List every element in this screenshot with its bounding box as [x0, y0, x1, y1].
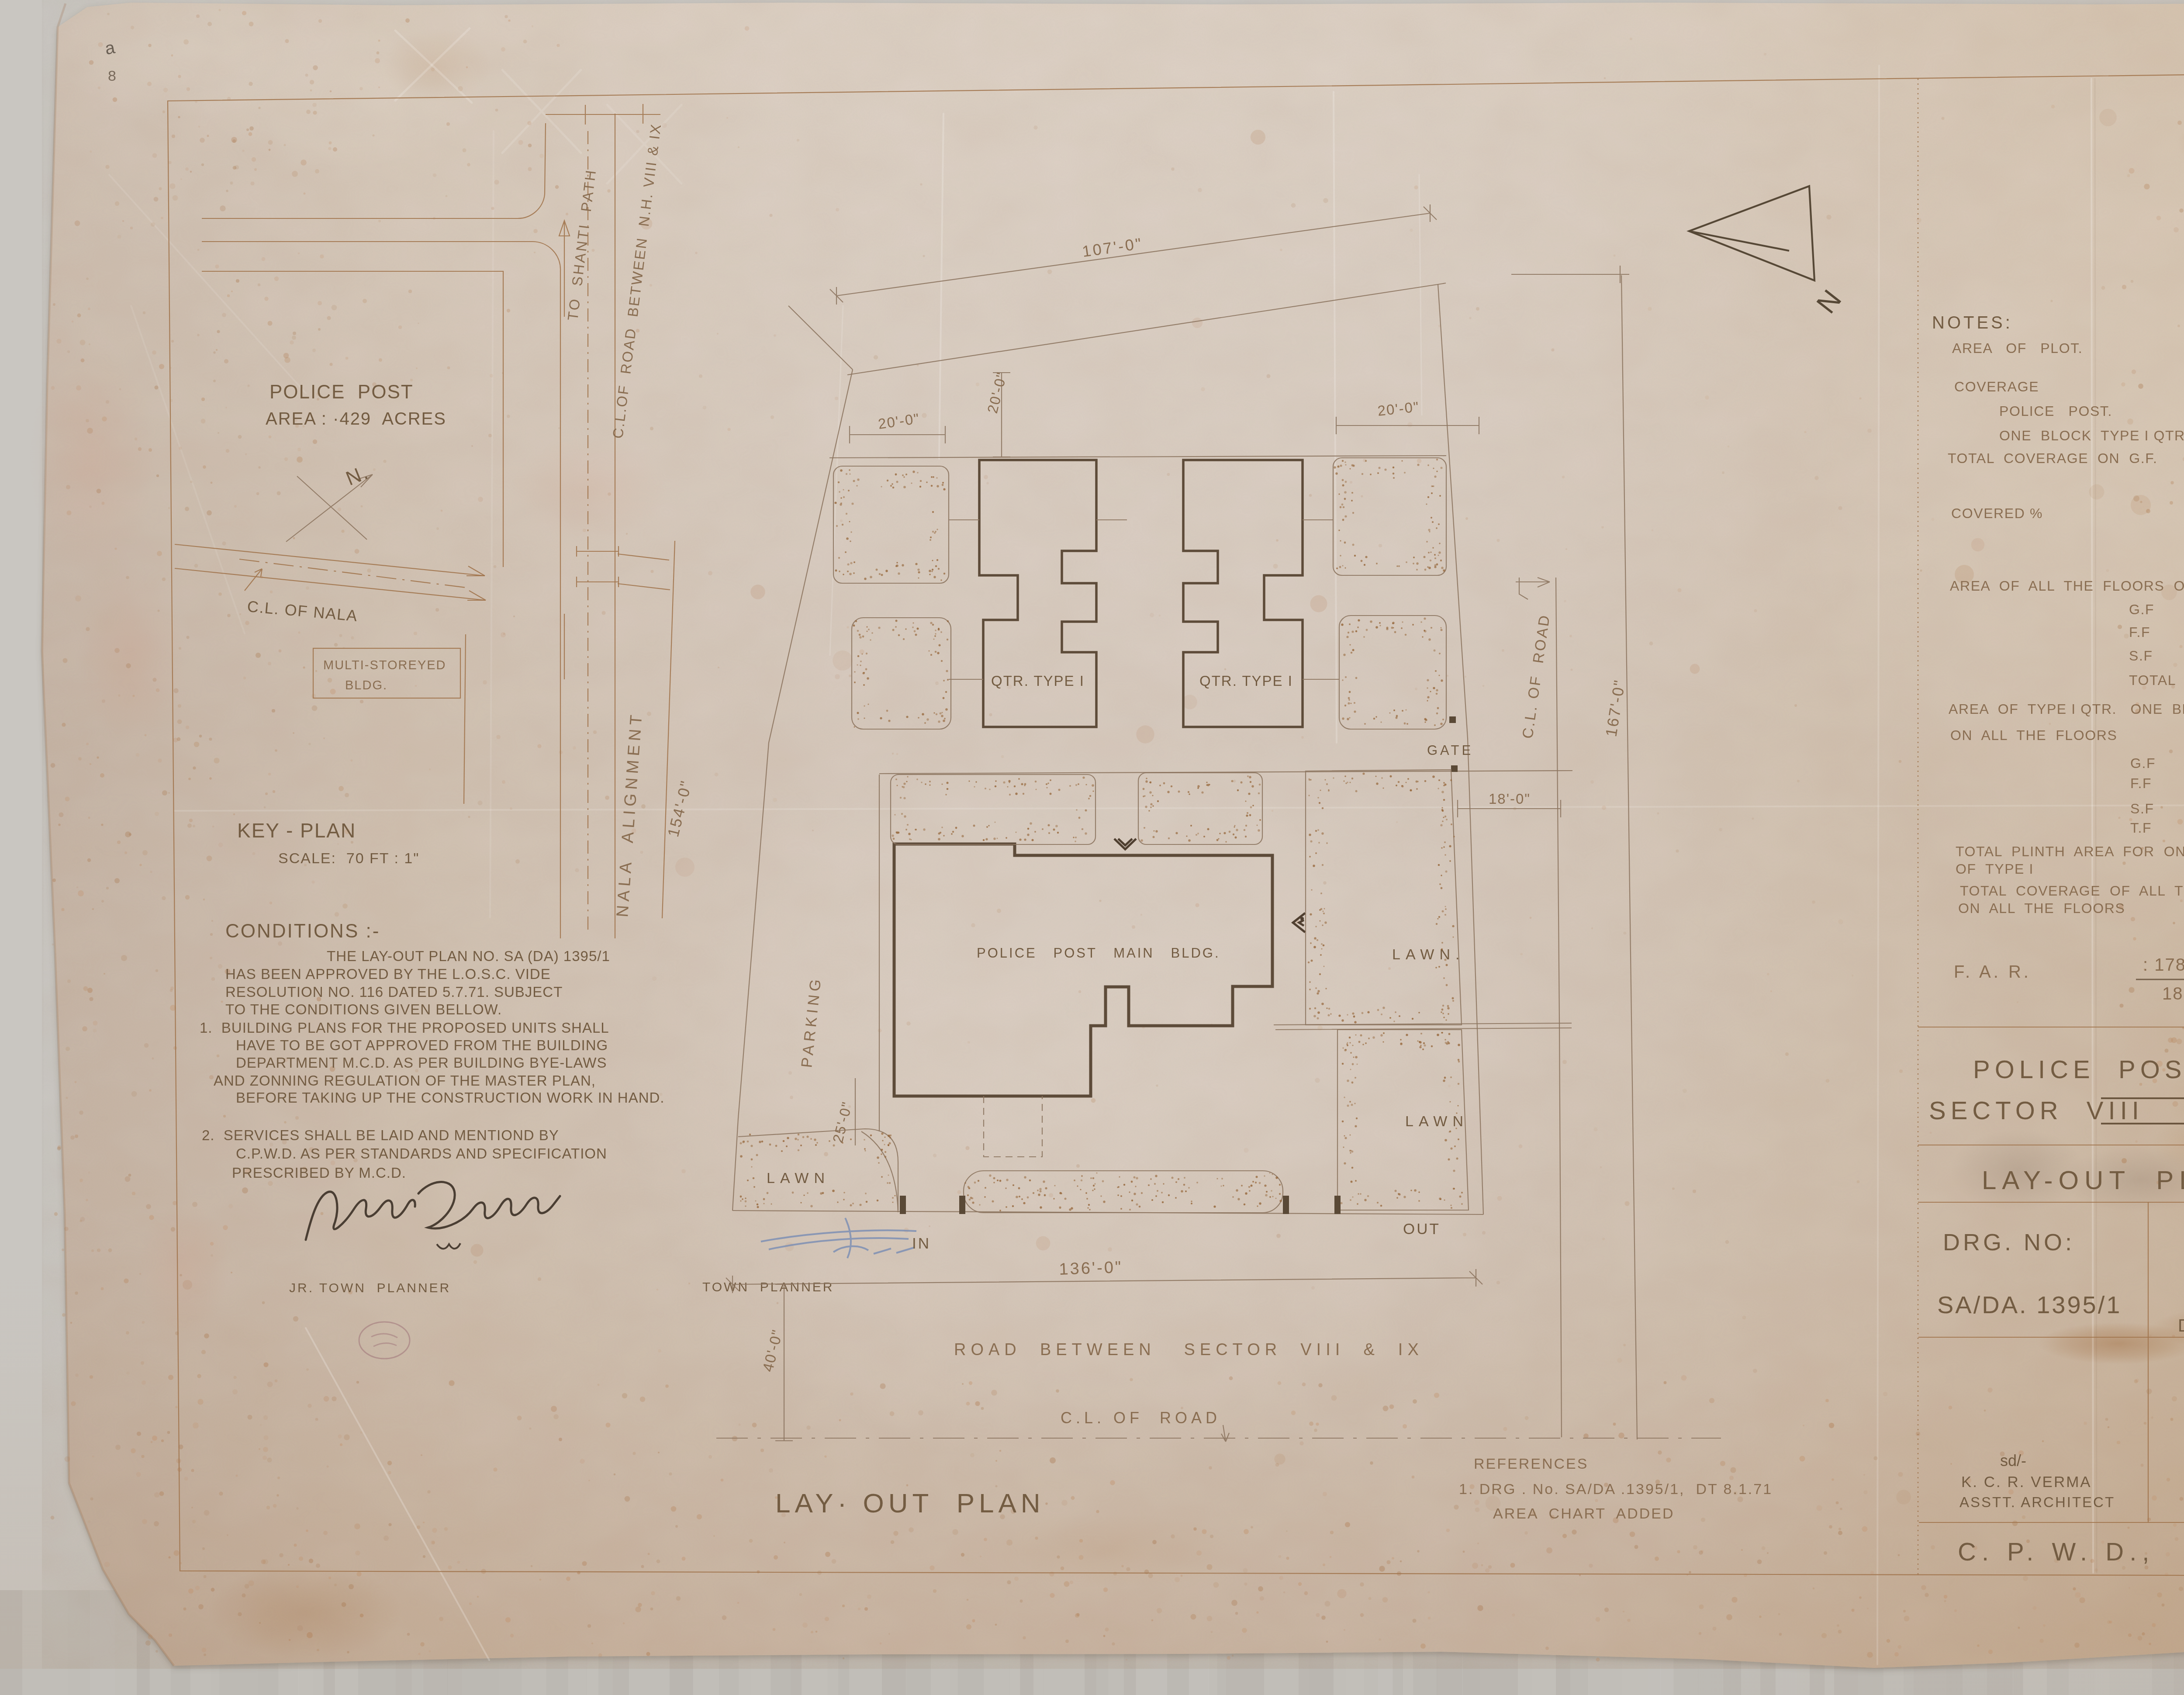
svg-text:TOWN PLANNER: TOWN PLANNER: [702, 1280, 834, 1294]
svg-text:C.L. OF ROAD: C.L. OF ROAD: [1061, 1409, 1221, 1427]
svg-text:F. A. R.: F. A. R.: [1954, 962, 2031, 981]
svg-text:AREA OF TYPE I QTR. ONE B: AREA OF TYPE I QTR. ONE BLOCK: [1949, 701, 2184, 717]
svg-text:POLICE POST: POLICE POST: [270, 381, 414, 402]
svg-text:8: 8: [108, 67, 116, 84]
svg-text:ONE BLOCK TYPE I QTR.: ONE BLOCK TYPE I QTR.: [1999, 428, 2184, 443]
svg-text:G.F: G.F: [2130, 755, 2156, 771]
svg-text:QTR. TYPE I: QTR. TYPE I: [991, 673, 1085, 689]
svg-text:BEFORE TAKING UP THE CONSTRUCT: BEFORE TAKING UP THE CONSTRUCTION WORK I…: [236, 1090, 664, 1106]
svg-text:CONDITIONS :-: CONDITIONS :-: [225, 920, 380, 941]
svg-text:S.F: S.F: [2129, 648, 2153, 664]
svg-text:SECTOR VIII: SECTOR VIII: [1929, 1096, 2144, 1124]
svg-text:ASSTT. ARCHITECT: ASSTT. ARCHITECT: [1959, 1494, 2115, 1510]
svg-text:QTR. TYPE I: QTR. TYPE I: [1199, 673, 1293, 689]
svg-text:136'-0": 136'-0": [1059, 1258, 1123, 1278]
svg-text:1. DRG . No. SA/DA .1395/1, D: 1. DRG . No. SA/DA .1395/1, DT 8.1.71: [1459, 1481, 1773, 1497]
svg-text:S.F: S.F: [2130, 801, 2154, 816]
svg-text:POLICE POST MAIN BLDG.: POLICE POST MAIN BLDG.: [977, 945, 1220, 961]
svg-text:HAS BEEN APPROVED BY THE L.O.S: HAS BEEN APPROVED BY THE L.O.S.C. VIDE: [225, 966, 551, 982]
svg-text:COVERAGE: COVERAGE: [1954, 379, 2039, 394]
svg-text:POLICE POST.: POLICE POST.: [1999, 403, 2112, 419]
svg-text:LAWN: LAWN: [1405, 1113, 1469, 1129]
svg-text:LAY· OUT PLAN: LAY· OUT PLAN: [775, 1488, 1045, 1518]
svg-text:K. C. R. VERMA: K. C. R. VERMA: [1961, 1473, 2092, 1490]
svg-text:TOTAL COVERAGE OF ALL THE: TOTAL COVERAGE OF ALL THE BLOCK: [1960, 883, 2184, 899]
svg-text:SCALE: 70 FT : 1": SCALE: 70 FT : 1": [278, 850, 419, 866]
svg-text:OF TYPE I: OF TYPE I: [1956, 861, 2034, 877]
svg-text:LAWN.: LAWN.: [1392, 946, 1465, 962]
svg-text:PRESCRIBED BY M.C.D.: PRESCRIBED BY M.C.D.: [232, 1165, 406, 1181]
svg-text:1. BUILDING PLANS FOR THE PRO: 1. BUILDING PLANS FOR THE PROPOSED UNITS…: [200, 1020, 609, 1036]
svg-text:LAWN: LAWN: [767, 1169, 830, 1186]
svg-text:ON ALL THE FLOORS: ON ALL THE FLOORS: [1950, 727, 2117, 743]
svg-text:F.F: F.F: [2129, 624, 2150, 640]
svg-text:AREA : ·429 ACRES: AREA : ·429 ACRES: [266, 409, 446, 428]
svg-text:C. P. W. D., NEW DELHI: C. P. W. D., NEW DELHI: [1958, 1537, 2184, 1566]
svg-text:MULTI-STOREYED: MULTI-STOREYED: [323, 658, 446, 672]
svg-text:BLDG.: BLDG.: [345, 678, 387, 692]
svg-text:JR. TOWN PLANNER: JR. TOWN PLANNER: [289, 1280, 451, 1295]
svg-text:ROAD BETWEEN SECTOR VIII: ROAD BETWEEN SECTOR VIII & IX: [954, 1340, 1424, 1359]
svg-text:18'-0": 18'-0": [1489, 791, 1531, 807]
svg-text:18687: 18687: [2162, 984, 2184, 1003]
svg-text:THE LAY-OUT PLAN NO. SA (DA) 1: THE LAY-OUT PLAN NO. SA (DA) 1395/1: [327, 948, 610, 964]
svg-text:C.P.W.D. AS PER STANDARDS AND: C.P.W.D. AS PER STANDARDS AND SPECIFICAT…: [236, 1145, 607, 1162]
svg-text:AND ZONNING REGULATION OF THE: AND ZONNING REGULATION OF THE MASTER PLA…: [214, 1072, 596, 1089]
svg-text:AREA CHART ADDED: AREA CHART ADDED: [1493, 1505, 1675, 1522]
svg-text:NOTES:: NOTES:: [1932, 313, 2013, 332]
svg-text:RESOLUTION NO. 116 DATED 5.7.7: RESOLUTION NO. 116 DATED 5.7.71. SUBJECT: [225, 984, 563, 1000]
svg-text:ON ALL THE FLOORS: ON ALL THE FLOORS: [1958, 900, 2125, 916]
svg-text:T.F: T.F: [2130, 820, 2152, 836]
svg-text:TO THE CONDITIONS GIVEN BELLOW: TO THE CONDITIONS GIVEN BELLOW.: [225, 1001, 502, 1017]
svg-text:LAY-OUT PLAN.: LAY-OUT PLAN.: [1982, 1166, 2184, 1195]
svg-text:G.F: G.F: [2129, 602, 2154, 617]
svg-text:AREA OF ALL THE FLOORS OF: AREA OF ALL THE FLOORS OF POLICE POST: [1950, 578, 2184, 594]
svg-text:REFERENCES: REFERENCES: [1474, 1455, 1588, 1472]
svg-text:IN: IN: [912, 1235, 931, 1252]
svg-text:TOTAL PLINTH AREA FOR ONE: TOTAL PLINTH AREA FOR ONE BLOCK: [1956, 844, 2184, 859]
svg-text:DEPARTMENT M.C.D. AS PER BUILD: DEPARTMENT M.C.D. AS PER BUILDING BYE-LA…: [236, 1055, 607, 1071]
svg-text:SA/DA. 1395/1: SA/DA. 1395/1: [1937, 1291, 2122, 1318]
svg-text:: 17868×100: : 17868×100: [2143, 955, 2184, 974]
svg-text:HAVE TO BE GOT APPROVED FROM T: HAVE TO BE GOT APPROVED FROM THE BUILDIN…: [236, 1037, 608, 1053]
svg-text:DRG. NO:: DRG. NO:: [1943, 1229, 2075, 1255]
svg-text:sd/-: sd/-: [2000, 1452, 2026, 1470]
svg-text:TOTAL COVERAGE ON G.F.: TOTAL COVERAGE ON G.F.: [1948, 450, 2157, 466]
svg-text:POLICE POST AT R. K. PURAM.: POLICE POST AT R. K. PURAM.: [1973, 1055, 2184, 1083]
svg-text:AREA OF PLOT.: AREA OF PLOT.: [1952, 340, 2083, 356]
svg-text:F.F: F.F: [2130, 775, 2152, 791]
svg-text:COVERED %: COVERED %: [1951, 505, 2043, 521]
svg-text:TOTAL: TOTAL: [2129, 672, 2176, 688]
svg-text:DEALT BY: DEALT BY: [2178, 1316, 2184, 1335]
svg-text:OUT: OUT: [1403, 1220, 1441, 1237]
svg-text:GATE: GATE: [1427, 743, 1473, 758]
svg-text:KEY - PLAN: KEY - PLAN: [237, 819, 356, 842]
svg-text:2. SERVICES SHALL BE LAID AND: 2. SERVICES SHALL BE LAID AND MENTIOND B…: [202, 1127, 559, 1143]
